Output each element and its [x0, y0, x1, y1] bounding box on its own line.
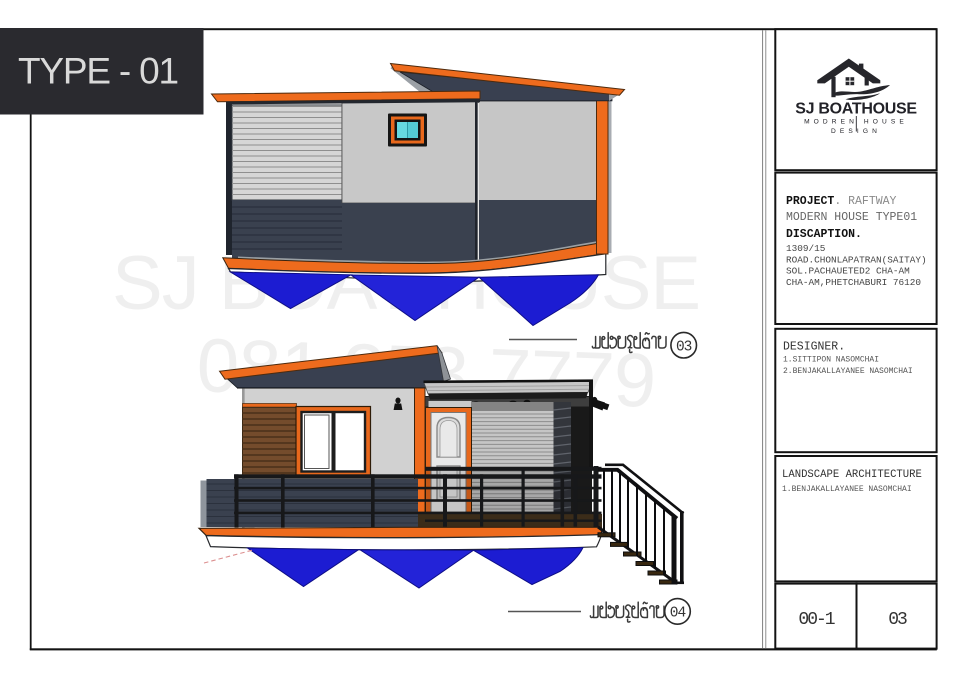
svg-text:CHA-AM,PHETCHABURI 76120: CHA-AM,PHETCHABURI 76120 [786, 277, 921, 288]
svg-text:04: 04 [670, 606, 686, 622]
svg-text:DISCAPTION.: DISCAPTION. [786, 228, 862, 241]
svg-text:1309/15: 1309/15 [786, 243, 826, 254]
svg-text:SOL.PACHAUETED2 CHA-AM: SOL.PACHAUETED2 CHA-AM [786, 266, 910, 277]
svg-text:03: 03 [888, 610, 907, 630]
svg-text:2.BENJAKALLAYANEE NASOMCHAI: 2.BENJAKALLAYANEE NASOMCHAI [783, 367, 913, 376]
svg-text:00-1: 00-1 [798, 610, 834, 630]
svg-text:03: 03 [676, 339, 692, 355]
svg-text:ROAD.CHONLAPATRAN(SAITAY): ROAD.CHONLAPATRAN(SAITAY) [786, 254, 927, 265]
svg-text:1.BENJAKALLAYANEE NASOMCHAI: 1.BENJAKALLAYANEE NASOMCHAI [782, 485, 912, 494]
svg-text:SJ BOATHOUSE: SJ BOATHOUSE [795, 101, 917, 118]
svg-text:PROJECT. RAFTWAY: PROJECT. RAFTWAY [786, 195, 897, 208]
svg-text:LANDSCAPE ARCHITECTURE: LANDSCAPE ARCHITECTURE [782, 469, 922, 481]
svg-text:1.SITTIPON NASOMCHAI: 1.SITTIPON NASOMCHAI [783, 356, 879, 365]
svg-text:MODERN HOUSE TYPE01: MODERN HOUSE TYPE01 [786, 211, 917, 224]
svg-text:DESIGNER.: DESIGNER. [783, 341, 845, 354]
svg-text:TYPE - 01: TYPE - 01 [18, 51, 178, 92]
